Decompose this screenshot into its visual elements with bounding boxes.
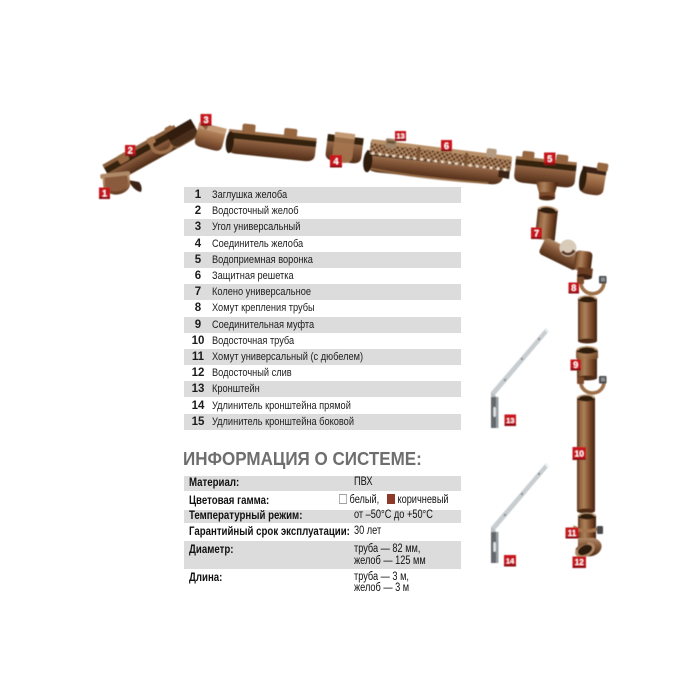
svg-text:11: 11 — [568, 529, 577, 538]
svg-text:14: 14 — [506, 556, 515, 565]
svg-text:2: 2 — [128, 146, 133, 156]
svg-text:6: 6 — [444, 141, 449, 151]
svg-text:1: 1 — [102, 189, 107, 199]
svg-text:10: 10 — [575, 449, 585, 459]
svg-text:5: 5 — [547, 154, 552, 164]
svg-text:4: 4 — [333, 156, 338, 166]
svg-text:8: 8 — [571, 283, 576, 293]
svg-text:13: 13 — [506, 416, 514, 425]
svg-text:12: 12 — [575, 558, 584, 567]
svg-text:7: 7 — [534, 228, 539, 238]
svg-text:3: 3 — [203, 115, 208, 125]
svg-text:13: 13 — [396, 132, 404, 141]
svg-text:9: 9 — [573, 360, 578, 370]
